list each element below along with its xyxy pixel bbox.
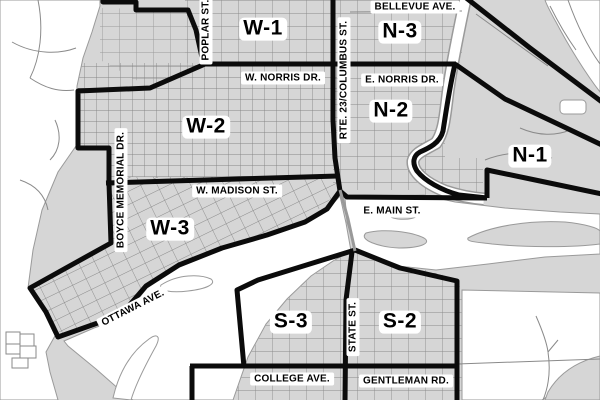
ward-label-n1: N-1 <box>508 145 551 168</box>
street-label-college-ave: COLLEGE AVE. <box>250 373 334 386</box>
street-label-state-st: STATE ST. <box>347 298 360 356</box>
ward-map: W-1 N-3 W-2 N-2 N-1 W-3 S-3 S-2 BELLEVUE… <box>0 0 600 400</box>
street-label-gentleman-rd: GENTLEMAN RD. <box>359 375 453 388</box>
street-label-rte-23-columbus-st: RTE. 23/COLUMBUS ST. <box>338 17 351 143</box>
ward-label-w2: W-2 <box>182 116 230 139</box>
ward-label-n3: N-3 <box>378 21 421 44</box>
street-label-e-main-st: E. MAIN ST. <box>359 205 424 218</box>
ward-label-s2: S-2 <box>379 311 421 334</box>
street-label-w-madison-st: W. MADISON ST. <box>192 185 282 198</box>
ward-label-w3: W-3 <box>146 218 194 241</box>
street-label-w-norris-dr: W. NORRIS DR. <box>241 72 325 85</box>
street-label-boyce-memorial-dr: BOYCE MEMORIAL DR. <box>115 128 128 252</box>
street-label-e-norris-dr: E. NORRIS DR. <box>361 74 443 87</box>
map-canvas <box>0 0 600 400</box>
street-label-poplar-st: POPLAR ST. <box>200 0 213 64</box>
ward-label-w1: W-1 <box>239 18 287 41</box>
ward-label-n2: N-2 <box>369 100 412 123</box>
street-label-bellevue-ave: BELLEVUE AVE. <box>371 1 460 14</box>
ward-label-s3: S-3 <box>270 311 312 334</box>
pond <box>560 100 586 114</box>
